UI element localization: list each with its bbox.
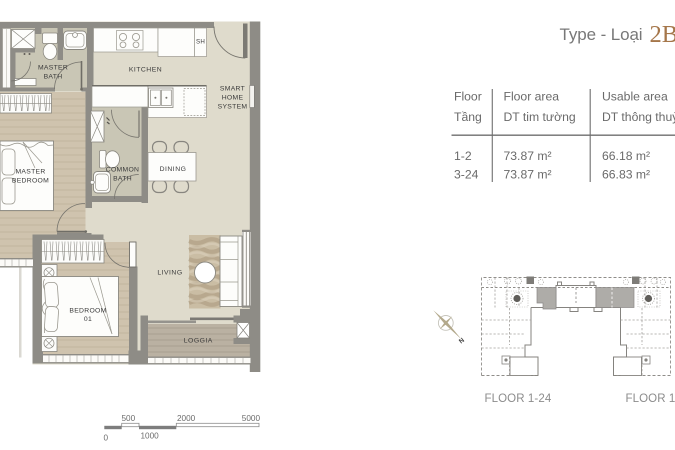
svg-text:DINING: DINING	[160, 166, 187, 173]
svg-text:01: 01	[84, 316, 92, 323]
svg-text:2000: 2000	[177, 414, 196, 423]
svg-text:SYSTEM: SYSTEM	[218, 104, 248, 111]
svg-text:5000: 5000	[242, 414, 261, 423]
svg-text:1000: 1000	[141, 432, 160, 441]
svg-text:73.87 m²: 73.87 m²	[504, 168, 552, 182]
svg-text:MASTER: MASTER	[15, 169, 45, 176]
svg-text:DT tim tường: DT tim tường	[504, 110, 576, 124]
svg-text:Floor area: Floor area	[504, 90, 560, 104]
svg-text:1-2: 1-2	[454, 149, 472, 163]
svg-text:66.83 m²: 66.83 m²	[602, 168, 650, 182]
svg-text:DT thông thuỷ: DT thông thuỷ	[602, 110, 675, 124]
svg-text:3-24: 3-24	[454, 168, 479, 182]
svg-text:0: 0	[104, 434, 109, 443]
svg-text:SMART: SMART	[220, 86, 245, 93]
svg-text:500: 500	[122, 414, 136, 423]
svg-text:Floor: Floor	[454, 90, 482, 104]
svg-text:SH: SH	[196, 39, 205, 46]
svg-text:KITCHEN: KITCHEN	[129, 67, 162, 74]
svg-text:BEDROOM: BEDROOM	[12, 178, 49, 185]
svg-text:2B: 2B	[650, 21, 675, 48]
svg-text:COMMON: COMMON	[106, 167, 140, 174]
svg-text:BATH: BATH	[44, 74, 63, 81]
svg-text:HOME: HOME	[222, 95, 244, 102]
svg-text:LIVING: LIVING	[157, 270, 182, 277]
svg-text:N: N	[458, 337, 466, 346]
svg-text:FLOOR 1-24: FLOOR 1-24	[626, 393, 675, 405]
svg-text:73.87 m²: 73.87 m²	[504, 149, 552, 163]
svg-text:Type - Loại: Type - Loại	[559, 25, 642, 44]
svg-text:FLOOR 1-24: FLOOR 1-24	[485, 393, 552, 405]
svg-text:Tầng: Tầng	[454, 110, 482, 124]
svg-text:LOGGIA: LOGGIA	[184, 338, 213, 345]
svg-text:MASTER: MASTER	[38, 65, 68, 72]
svg-text:Usable area: Usable area	[602, 90, 668, 104]
svg-text:BATH: BATH	[113, 176, 132, 183]
svg-text:66.18 m²: 66.18 m²	[602, 149, 650, 163]
svg-text:BEDROOM: BEDROOM	[69, 308, 106, 315]
